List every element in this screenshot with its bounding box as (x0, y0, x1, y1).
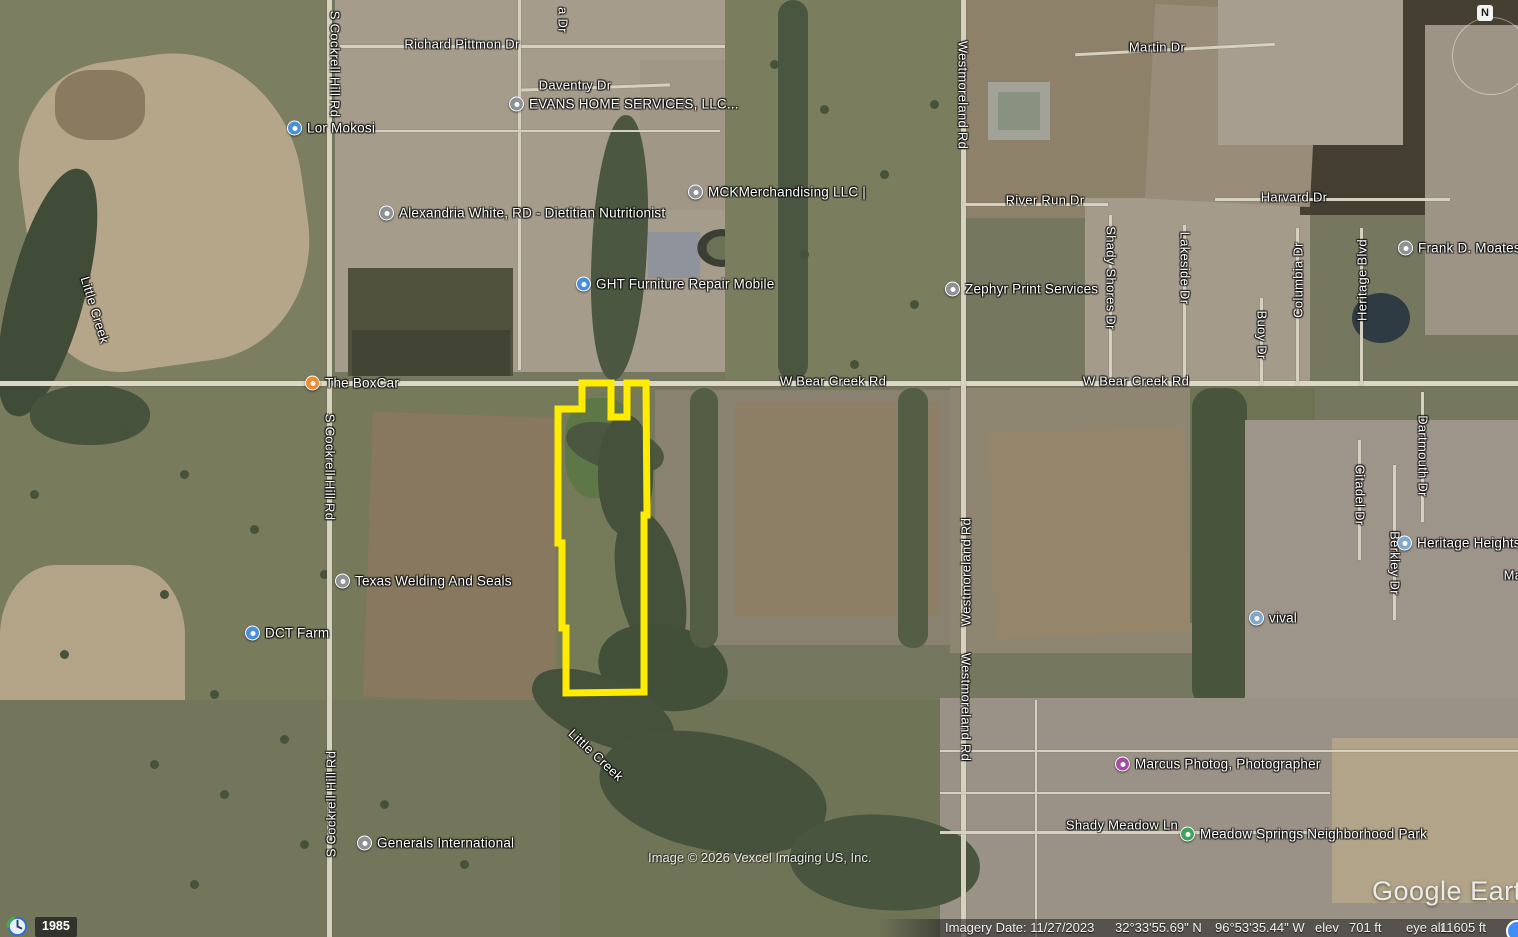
place-label-ght-furniture-repair-mobile[interactable]: GHT Furniture Repair Mobile (576, 277, 774, 292)
place-name: Generals International (377, 836, 514, 851)
business-pin-icon[interactable] (945, 282, 960, 297)
business-pin-icon[interactable] (1398, 241, 1413, 256)
restaurant-icon[interactable] (305, 376, 320, 391)
place-label-lor-mokosi[interactable]: Lor Mokosi (287, 121, 375, 136)
compass-north-icon[interactable]: N (1477, 5, 1493, 21)
generic-place-icon[interactable] (1249, 611, 1264, 626)
place-name: The BoxCar (325, 376, 399, 391)
place-name: Lor Mokosi (307, 121, 375, 136)
elev-value: 701 ft (1349, 920, 1382, 935)
business-pin-icon[interactable] (357, 836, 372, 851)
place-label-frank-d-moates[interactable]: Frank D. Moates (1398, 241, 1518, 256)
imagery-date: Imagery Date: 11/27/2023 (945, 920, 1094, 935)
lodging-icon[interactable] (287, 121, 302, 136)
clock-icon[interactable] (6, 915, 29, 937)
place-name: Texas Welding And Seals (355, 574, 512, 589)
latitude: 32°33'55.69" N (1115, 920, 1202, 935)
lodging-icon[interactable] (576, 277, 591, 292)
place-label-zephyr-print-services[interactable]: Zephyr Print Services (945, 282, 1098, 297)
place-label-alexandria-white-rd-dietitian-nu[interactable]: Alexandria White, RD - Dietitian Nutriti… (379, 206, 665, 221)
place-label-meadow-springs-neighborhood-park[interactable]: Meadow Springs Neighborhood Park (1180, 827, 1427, 842)
place-name: GHT Furniture Repair Mobile (596, 277, 774, 292)
place-label-dct-farm[interactable]: DCT Farm (245, 626, 329, 641)
historical-imagery-control[interactable]: 1985 (6, 915, 77, 937)
place-name: vival (1269, 611, 1297, 626)
imagery-year-badge[interactable]: 1985 (35, 917, 77, 937)
business-pin-icon[interactable] (509, 97, 524, 112)
place-label-the-boxcar[interactable]: The BoxCar (305, 376, 399, 391)
place-name: Marcus Photog, Photographer (1135, 757, 1321, 772)
place-name: Alexandria White, RD - Dietitian Nutriti… (399, 206, 665, 221)
place-label-heritage-heights[interactable]: Heritage Heights (1397, 536, 1518, 551)
generic-place-icon[interactable] (1397, 536, 1412, 551)
place-label-marcus-photog-photographer[interactable]: Marcus Photog, Photographer (1115, 757, 1321, 772)
business-pin-icon[interactable] (688, 185, 703, 200)
place-name: Heritage Heights (1417, 536, 1518, 551)
place-name: Zephyr Print Services (965, 282, 1098, 297)
place-label-vival[interactable]: vival (1249, 611, 1297, 626)
google-earth-map-view[interactable]: Richard Pittmon Dra DrDaventry DrS Cockr… (0, 0, 1518, 937)
place-name: EVANS HOME SERVICES, LLC... (529, 97, 739, 112)
park-icon[interactable] (1180, 827, 1195, 842)
place-label-evans-home-services-llc[interactable]: EVANS HOME SERVICES, LLC... (509, 97, 739, 112)
business-pin-icon[interactable] (335, 574, 350, 589)
google-earth-watermark: Google Earth (1372, 876, 1518, 907)
status-bar: Imagery Date: 11/27/2023 32°33'55.69" N … (878, 919, 1518, 937)
place-name: Meadow Springs Neighborhood Park (1200, 827, 1427, 842)
place-name: DCT Farm (265, 626, 329, 641)
place-label-texas-welding-and-seals[interactable]: Texas Welding And Seals (335, 574, 512, 589)
business-pin-icon[interactable] (379, 206, 394, 221)
eye-alt-value: 11605 ft (1440, 920, 1486, 935)
imagery-copyright: Image © 2026 Vexcel Imaging US, Inc. (648, 850, 871, 865)
elev-label: elev (1315, 920, 1339, 935)
eye-alt-label: eye alt (1406, 920, 1444, 935)
longitude: 96°53'35.44" W (1215, 920, 1305, 935)
place-name: Frank D. Moates (1418, 241, 1518, 256)
place-name: MCKMerchandising LLC | (708, 185, 866, 200)
lodging-icon[interactable] (245, 626, 260, 641)
camera-icon[interactable] (1115, 757, 1130, 772)
place-label-generals-international[interactable]: Generals International (357, 836, 514, 851)
place-label-mckmerchandising-llc[interactable]: MCKMerchandising LLC | (688, 185, 866, 200)
place-label-layer: Lor MokosiEVANS HOME SERVICES, LLC...MCK… (0, 0, 1518, 937)
